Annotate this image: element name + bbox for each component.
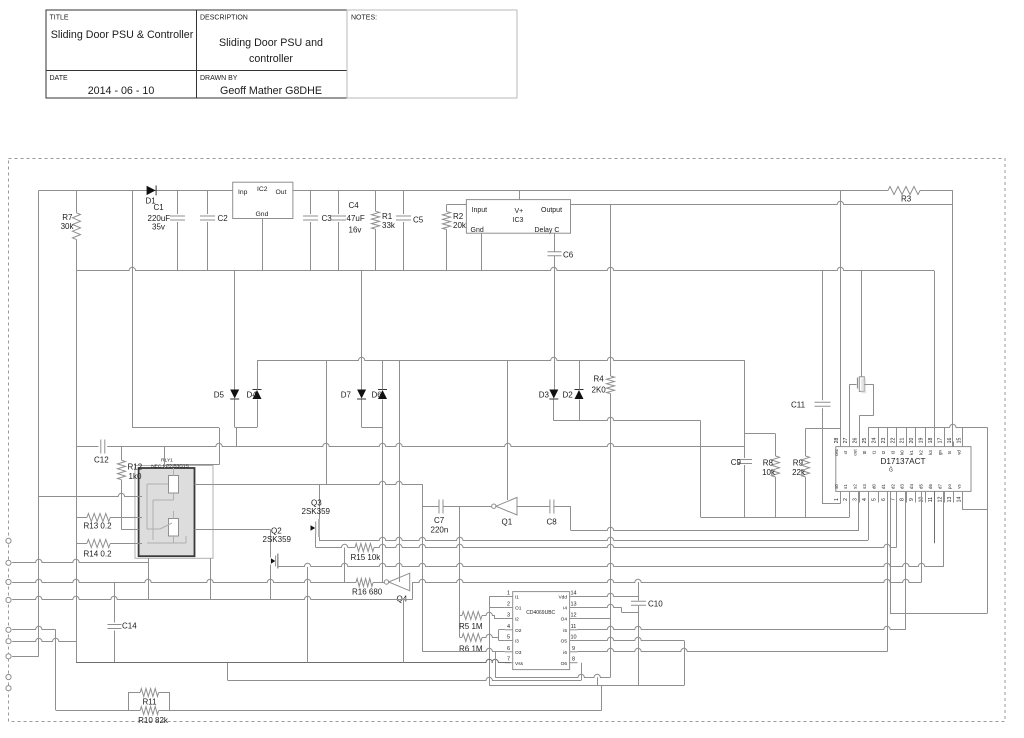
svg-text:C7: C7 xyxy=(434,516,445,525)
svg-text:C11: C11 xyxy=(791,401,806,410)
svg-text:47uF: 47uF xyxy=(347,214,365,223)
svg-text:C3: C3 xyxy=(322,214,333,223)
svg-text:NEC EP2-B3G1S: NEC EP2-B3G1S xyxy=(151,463,189,469)
svg-text:30k: 30k xyxy=(61,222,75,231)
svg-text:D2: D2 xyxy=(563,391,574,400)
svg-text:R14 0.2: R14 0.2 xyxy=(84,550,113,559)
svg-text:V+: V+ xyxy=(515,208,524,215)
svg-text:i4: i4 xyxy=(563,606,567,612)
svg-text:R9: R9 xyxy=(793,459,804,468)
svg-text:s2: s2 xyxy=(853,484,858,489)
svg-text:D6: D6 xyxy=(372,391,383,400)
svg-text:22k: 22k xyxy=(792,468,806,477)
svg-text:O4: O4 xyxy=(561,617,568,623)
svg-text:17: 17 xyxy=(937,438,943,444)
svg-text:13: 13 xyxy=(947,497,953,503)
svg-text:C1: C1 xyxy=(154,203,165,212)
svg-text:O3: O3 xyxy=(515,650,522,656)
svg-text:13: 13 xyxy=(570,602,576,608)
svg-text:Delay C: Delay C xyxy=(535,227,560,234)
svg-text:i6: i6 xyxy=(563,650,567,656)
svg-text:5: 5 xyxy=(507,635,510,641)
svg-text:O5: O5 xyxy=(561,639,568,645)
svg-text:14: 14 xyxy=(570,591,576,597)
svg-text:D7: D7 xyxy=(341,391,352,400)
svg-text:12: 12 xyxy=(570,613,576,619)
svg-text:R15 10k: R15 10k xyxy=(351,553,382,562)
svg-text:RLY1: RLY1 xyxy=(161,458,173,464)
svg-text:20k: 20k xyxy=(453,221,467,230)
svg-text:d2: d2 xyxy=(890,484,895,489)
svg-text:i3: i3 xyxy=(515,639,519,645)
svg-text:10: 10 xyxy=(570,635,576,641)
svg-text:Gnd: Gnd xyxy=(256,211,269,218)
svg-text:t2: t2 xyxy=(881,450,886,454)
svg-text:16v: 16v xyxy=(349,226,362,235)
svg-text:8: 8 xyxy=(900,498,906,501)
svg-text:16: 16 xyxy=(947,438,953,444)
svg-text:i5: i5 xyxy=(563,628,567,634)
svg-text:t3: t3 xyxy=(890,450,895,454)
svg-text:t0: t0 xyxy=(862,450,867,454)
svg-text:C14: C14 xyxy=(122,622,137,631)
svg-text:7: 7 xyxy=(890,498,896,501)
svg-text:Sliding Door PSU and: Sliding Door PSU and xyxy=(219,37,323,49)
svg-text:24: 24 xyxy=(872,438,878,444)
svg-text:6: 6 xyxy=(507,646,510,652)
svg-text:k2: k2 xyxy=(919,450,924,455)
svg-text:18: 18 xyxy=(928,438,934,444)
svg-text:R13 0.2: R13 0.2 xyxy=(84,522,113,531)
svg-text:i1: i1 xyxy=(515,595,519,601)
svg-text:R11: R11 xyxy=(142,698,157,707)
svg-text:R2: R2 xyxy=(453,212,464,221)
svg-text:23: 23 xyxy=(881,438,887,444)
svg-text:3: 3 xyxy=(853,498,859,501)
svg-text:O2: O2 xyxy=(515,628,522,634)
svg-text:Sliding Door PSU & Controller: Sliding Door PSU & Controller xyxy=(51,29,194,41)
svg-text:Inp: Inp xyxy=(238,189,248,196)
svg-text:k0: k0 xyxy=(900,450,905,455)
svg-text:4: 4 xyxy=(507,624,510,630)
svg-text:11: 11 xyxy=(571,624,577,630)
svg-text:35v: 35v xyxy=(152,223,165,232)
svg-text:22: 22 xyxy=(890,438,896,444)
svg-text:2: 2 xyxy=(507,602,510,608)
svg-text:DESCRIPTION: DESCRIPTION xyxy=(200,15,248,22)
svg-text:t1: t1 xyxy=(872,450,877,454)
svg-text:controller: controller xyxy=(249,53,293,65)
svg-text:Output: Output xyxy=(541,207,562,214)
svg-text:9: 9 xyxy=(572,646,575,652)
svg-text:Input: Input xyxy=(472,207,488,214)
svg-text:s1: s1 xyxy=(843,484,848,489)
svg-text:C10: C10 xyxy=(648,600,663,609)
svg-text:8: 8 xyxy=(572,657,575,663)
svg-text:R10 82k: R10 82k xyxy=(138,716,169,725)
svg-text:IC2: IC2 xyxy=(257,186,268,193)
svg-text:i2: i2 xyxy=(515,617,519,623)
svg-text:O1: O1 xyxy=(515,606,522,612)
svg-text:DATE: DATE xyxy=(50,75,68,82)
svg-text:Vdd: Vdd xyxy=(558,595,567,601)
svg-text:C6: C6 xyxy=(563,251,574,260)
svg-text:d3: d3 xyxy=(900,484,905,489)
svg-text:d1: d1 xyxy=(881,484,886,489)
svg-text:d7: d7 xyxy=(937,484,942,489)
svg-text:6: 6 xyxy=(881,498,887,501)
svg-text:Gnd: Gnd xyxy=(471,227,484,234)
svg-text:20: 20 xyxy=(909,438,915,444)
svg-text:po: po xyxy=(947,484,952,489)
svg-text:gn: gn xyxy=(937,450,942,455)
svg-text:12: 12 xyxy=(937,497,943,503)
svg-text:DRAWN BY: DRAWN BY xyxy=(200,75,238,82)
svg-text:Out: Out xyxy=(276,189,287,196)
svg-text:7: 7 xyxy=(507,657,510,663)
svg-text:2SK359: 2SK359 xyxy=(263,535,292,544)
svg-text:C2: C2 xyxy=(218,214,229,223)
svg-text:4: 4 xyxy=(862,498,868,501)
svg-text:C12: C12 xyxy=(94,456,109,465)
svg-text:9: 9 xyxy=(909,498,915,501)
svg-text:vd: vd xyxy=(956,450,961,455)
svg-text:2SK359: 2SK359 xyxy=(302,507,331,516)
svg-text:2K0: 2K0 xyxy=(592,386,607,395)
svg-text:1: 1 xyxy=(834,498,840,501)
svg-text:2014 - 06 - 10: 2014 - 06 - 10 xyxy=(88,85,155,97)
svg-text:1k0: 1k0 xyxy=(129,472,142,481)
svg-text:R3: R3 xyxy=(901,195,912,204)
svg-text:Geoff Mather G8DHE: Geoff Mather G8DHE xyxy=(220,85,322,97)
svg-text:D4: D4 xyxy=(247,391,258,400)
svg-text:19: 19 xyxy=(919,438,925,444)
svg-text:R4: R4 xyxy=(594,375,605,384)
svg-text:27: 27 xyxy=(843,438,849,444)
svg-text:k1: k1 xyxy=(909,450,914,455)
svg-text:C8: C8 xyxy=(547,518,558,527)
svg-text:R1: R1 xyxy=(382,212,393,221)
svg-text:d6: d6 xyxy=(928,484,933,489)
svg-text:5: 5 xyxy=(872,498,878,501)
svg-text:11: 11 xyxy=(928,497,934,502)
svg-text:14: 14 xyxy=(956,497,962,503)
svg-text:Vss: Vss xyxy=(515,661,524,667)
svg-text:R6 1M: R6 1M xyxy=(459,645,483,654)
svg-text:15: 15 xyxy=(956,438,962,444)
svg-text:1: 1 xyxy=(507,591,510,597)
svg-text:D5: D5 xyxy=(214,391,225,400)
svg-text:220n: 220n xyxy=(431,526,449,535)
svg-text:TITLE: TITLE xyxy=(50,15,69,22)
svg-text:R5 1M: R5 1M xyxy=(459,622,483,631)
svg-text:s3: s3 xyxy=(862,484,867,489)
svg-text:R8: R8 xyxy=(763,459,774,468)
svg-text:R16 680: R16 680 xyxy=(352,588,383,597)
svg-text:Q1: Q1 xyxy=(502,518,513,527)
svg-text:10k: 10k xyxy=(762,468,776,477)
svg-text:out: out xyxy=(853,449,858,456)
svg-text:28: 28 xyxy=(834,438,840,444)
svg-text:D3: D3 xyxy=(539,391,550,400)
svg-text:CD4069UBC: CD4069UBC xyxy=(526,610,555,616)
svg-text:33k: 33k xyxy=(382,221,396,230)
svg-text:k3: k3 xyxy=(928,450,933,455)
svg-text:NOTES:: NOTES: xyxy=(351,15,377,22)
svg-text:26: 26 xyxy=(853,438,859,444)
svg-text:C5: C5 xyxy=(413,216,424,225)
svg-text:D17137ACT: D17137ACT xyxy=(880,457,925,466)
svg-text:Ĝ: Ĝ xyxy=(889,467,893,474)
svg-text:3: 3 xyxy=(507,613,510,619)
svg-text:21: 21 xyxy=(900,438,906,444)
svg-text:osc: osc xyxy=(834,448,839,456)
svg-text:O6: O6 xyxy=(561,661,568,667)
svg-text:d4: d4 xyxy=(909,484,914,489)
svg-text:R12: R12 xyxy=(128,463,143,472)
svg-text:2: 2 xyxy=(843,498,849,501)
svg-text:25: 25 xyxy=(862,438,868,444)
svg-text:C9: C9 xyxy=(731,458,742,467)
svg-text:R7: R7 xyxy=(62,213,73,222)
svg-text:IC3: IC3 xyxy=(513,217,524,224)
svg-text:C4: C4 xyxy=(349,201,360,210)
svg-text:d5: d5 xyxy=(919,484,924,489)
svg-text:d0: d0 xyxy=(872,484,877,489)
svg-text:s0: s0 xyxy=(834,484,839,489)
